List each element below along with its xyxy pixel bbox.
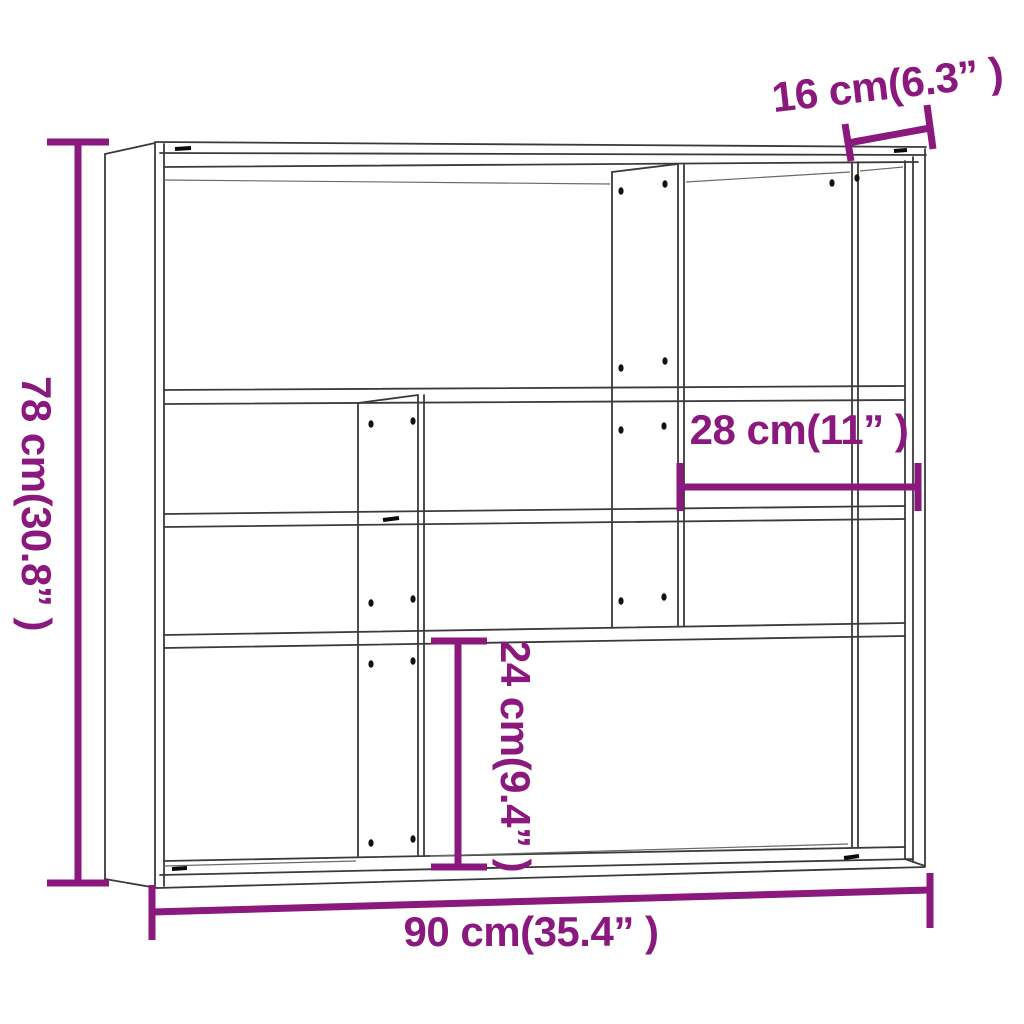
- bottom-compartment-height-label: 24 cm(9.4” ): [492, 640, 539, 872]
- overall-height-dimension: 78 cm(30.8” ): [13, 142, 109, 883]
- compartment-width-dimension-line: [680, 463, 918, 511]
- wall-shelf-dimension-diagram: 78 cm(30.8” ) 16 cm(6.3” ) 28 cm(11” ): [0, 0, 1024, 1024]
- top-right-width-dimension-line: [845, 105, 933, 161]
- top-right-width-label: 16 cm(6.3” ): [769, 48, 1005, 121]
- compartment-width-dimension: 28 cm(11” ): [680, 406, 918, 511]
- overall-height-label: 78 cm(30.8” ): [13, 376, 60, 631]
- compartment-width-label: 28 cm(11” ): [690, 406, 909, 453]
- dimension-diagram-page: 78 cm(30.8” ) 16 cm(6.3” ) 28 cm(11” ): [0, 0, 1024, 1024]
- top-right-width-dimension: 16 cm(6.3” ): [769, 48, 1005, 161]
- bottom-compartment-height-dimension-line: [431, 641, 487, 867]
- overall-width-label: 90 cm(35.4” ): [404, 908, 659, 955]
- bottom-compartment-height-dimension: 24 cm(9.4” ): [431, 640, 539, 872]
